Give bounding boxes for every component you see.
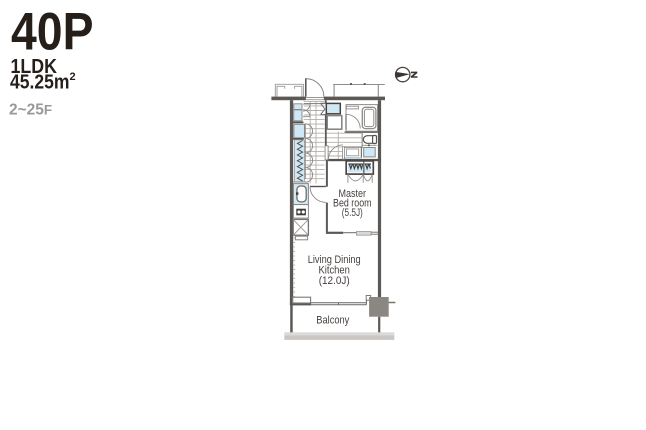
- svg-text:(12.0J): (12.0J): [319, 275, 350, 287]
- svg-text:2: 2: [70, 71, 76, 83]
- svg-text:45.25m: 45.25m: [10, 71, 70, 94]
- svg-text:40P: 40P: [11, 3, 94, 62]
- svg-text:2~25F: 2~25F: [9, 101, 52, 118]
- svg-text:(5.5J): (5.5J): [342, 207, 363, 219]
- svg-text:Balcony: Balcony: [316, 314, 350, 326]
